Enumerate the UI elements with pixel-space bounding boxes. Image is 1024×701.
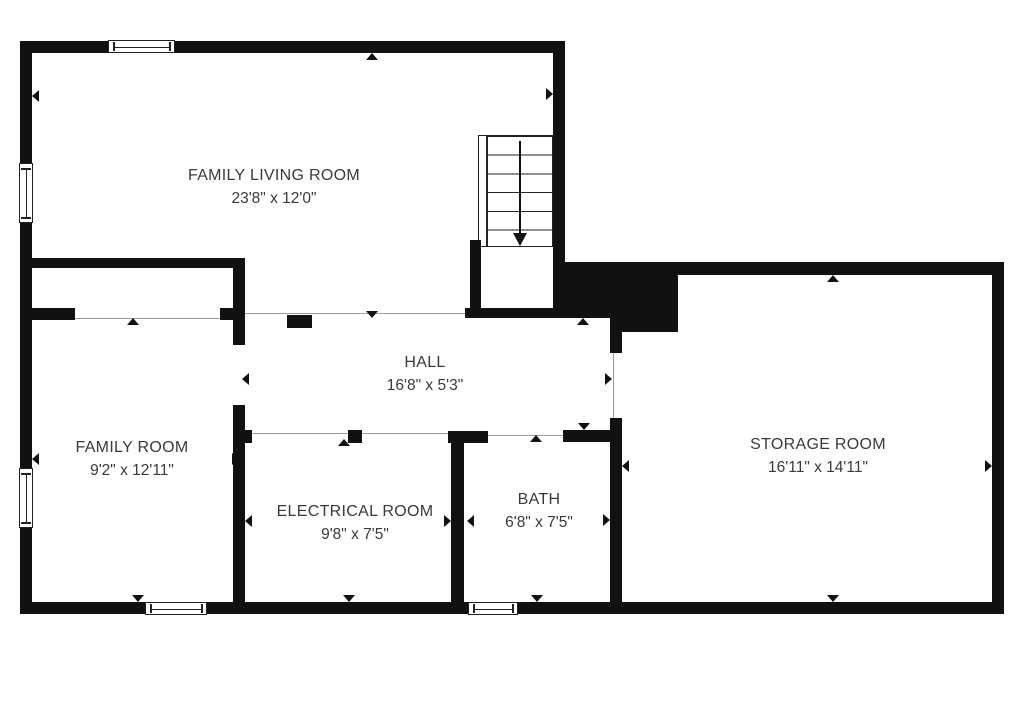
- window-cap: [21, 473, 31, 475]
- wall-segment: [220, 308, 245, 320]
- opening-line: [613, 353, 614, 418]
- opening-marker: [366, 311, 378, 318]
- wall-segment: [207, 602, 468, 614]
- room-dimensions: 9'8" x 7'5": [277, 523, 434, 546]
- stairs-down-arrowhead-icon: [513, 233, 527, 246]
- room-label-electrical-room: ELECTRICAL ROOM 9'8" x 7'5": [277, 500, 434, 546]
- window-centerline: [150, 609, 202, 610]
- wall-segment: [610, 418, 622, 614]
- window-cap: [113, 42, 115, 51]
- wall-segment: [20, 602, 145, 614]
- opening-marker: [827, 275, 839, 282]
- room-name: ELECTRICAL ROOM: [277, 500, 434, 523]
- room-dimensions: 16'8" x 5'3": [387, 374, 463, 397]
- wall-segment: [678, 262, 1004, 275]
- window-cap: [169, 42, 171, 51]
- wall-segment: [348, 430, 362, 443]
- wall-segment: [451, 431, 464, 614]
- wall-segment: [20, 223, 32, 468]
- room-name: HALL: [387, 351, 463, 374]
- opening-marker: [546, 88, 553, 100]
- stair-stringer: [478, 135, 487, 247]
- opening-line: [362, 433, 448, 434]
- wall-segment: [553, 41, 565, 262]
- window-centerline: [473, 609, 513, 610]
- wall-segment: [518, 602, 1004, 614]
- opening-marker: [578, 423, 590, 430]
- wall-segment: [465, 308, 618, 318]
- window-cap: [21, 168, 31, 170]
- opening-marker: [366, 53, 378, 60]
- opening-marker: [577, 318, 589, 325]
- opening-marker: [605, 373, 612, 385]
- opening-marker: [242, 373, 249, 385]
- floor-plan: FAMILY LIVING ROOM 23'8" x 12'0" HALL 16…: [0, 0, 1024, 701]
- window-centerline: [26, 168, 27, 218]
- room-label-family-room: FAMILY ROOM 9'2" x 12'11": [76, 436, 189, 482]
- opening-marker: [232, 453, 239, 465]
- opening-marker: [343, 595, 355, 602]
- wall-segment: [553, 262, 678, 312]
- window-cap: [150, 604, 152, 613]
- room-label-hall: HALL 16'8" x 5'3": [387, 351, 463, 397]
- opening-marker: [444, 515, 451, 527]
- window-cap: [201, 604, 203, 613]
- window-centerline: [113, 47, 170, 48]
- room-dimensions: 9'2" x 12'11": [76, 459, 189, 482]
- room-name: STORAGE ROOM: [750, 433, 886, 456]
- opening-line: [488, 435, 563, 436]
- window-cap: [473, 604, 475, 613]
- wall-segment: [175, 41, 565, 53]
- wall-segment: [287, 315, 312, 328]
- opening-marker: [127, 318, 139, 325]
- window-cap: [512, 604, 514, 613]
- stairs-down-arrow: [519, 141, 521, 233]
- opening-marker: [531, 595, 543, 602]
- opening-marker: [603, 514, 610, 526]
- opening-marker: [827, 595, 839, 602]
- opening-marker: [245, 515, 252, 527]
- wall-segment: [992, 262, 1004, 614]
- wall-segment: [233, 430, 252, 443]
- wall-segment: [20, 308, 75, 320]
- room-label-storage-room: STORAGE ROOM 16'11" x 14'11": [750, 433, 886, 479]
- wall-segment: [20, 41, 32, 163]
- window-centerline: [26, 473, 27, 523]
- window-cap: [21, 217, 31, 219]
- opening-marker: [530, 435, 542, 442]
- wall-segment: [233, 258, 245, 345]
- wall-segment: [563, 430, 610, 442]
- room-label-family-living-room: FAMILY LIVING ROOM 23'8" x 12'0": [188, 164, 360, 210]
- room-label-bath: BATH 6'8" x 7'5": [505, 488, 573, 534]
- room-name: BATH: [505, 488, 573, 511]
- opening-marker: [32, 453, 39, 465]
- opening-marker: [338, 439, 350, 446]
- opening-marker: [622, 460, 629, 472]
- room-name: FAMILY ROOM: [76, 436, 189, 459]
- room-dimensions: 6'8" x 7'5": [505, 511, 573, 534]
- opening-marker: [132, 595, 144, 602]
- room-dimensions: 23'8" x 12'0": [188, 187, 360, 210]
- opening-marker: [985, 460, 992, 472]
- opening-line: [75, 318, 220, 319]
- window-cap: [21, 522, 31, 524]
- wall-segment: [470, 240, 481, 318]
- opening-marker: [32, 90, 39, 102]
- opening-line: [252, 433, 348, 434]
- wall-segment: [610, 332, 622, 353]
- wall-segment: [20, 41, 108, 53]
- opening-line: [245, 313, 465, 314]
- wall-segment: [610, 312, 678, 332]
- room-dimensions: 16'11" x 14'11": [750, 456, 886, 479]
- room-name: FAMILY LIVING ROOM: [188, 164, 360, 187]
- opening-marker: [467, 515, 474, 527]
- wall-segment: [32, 258, 237, 268]
